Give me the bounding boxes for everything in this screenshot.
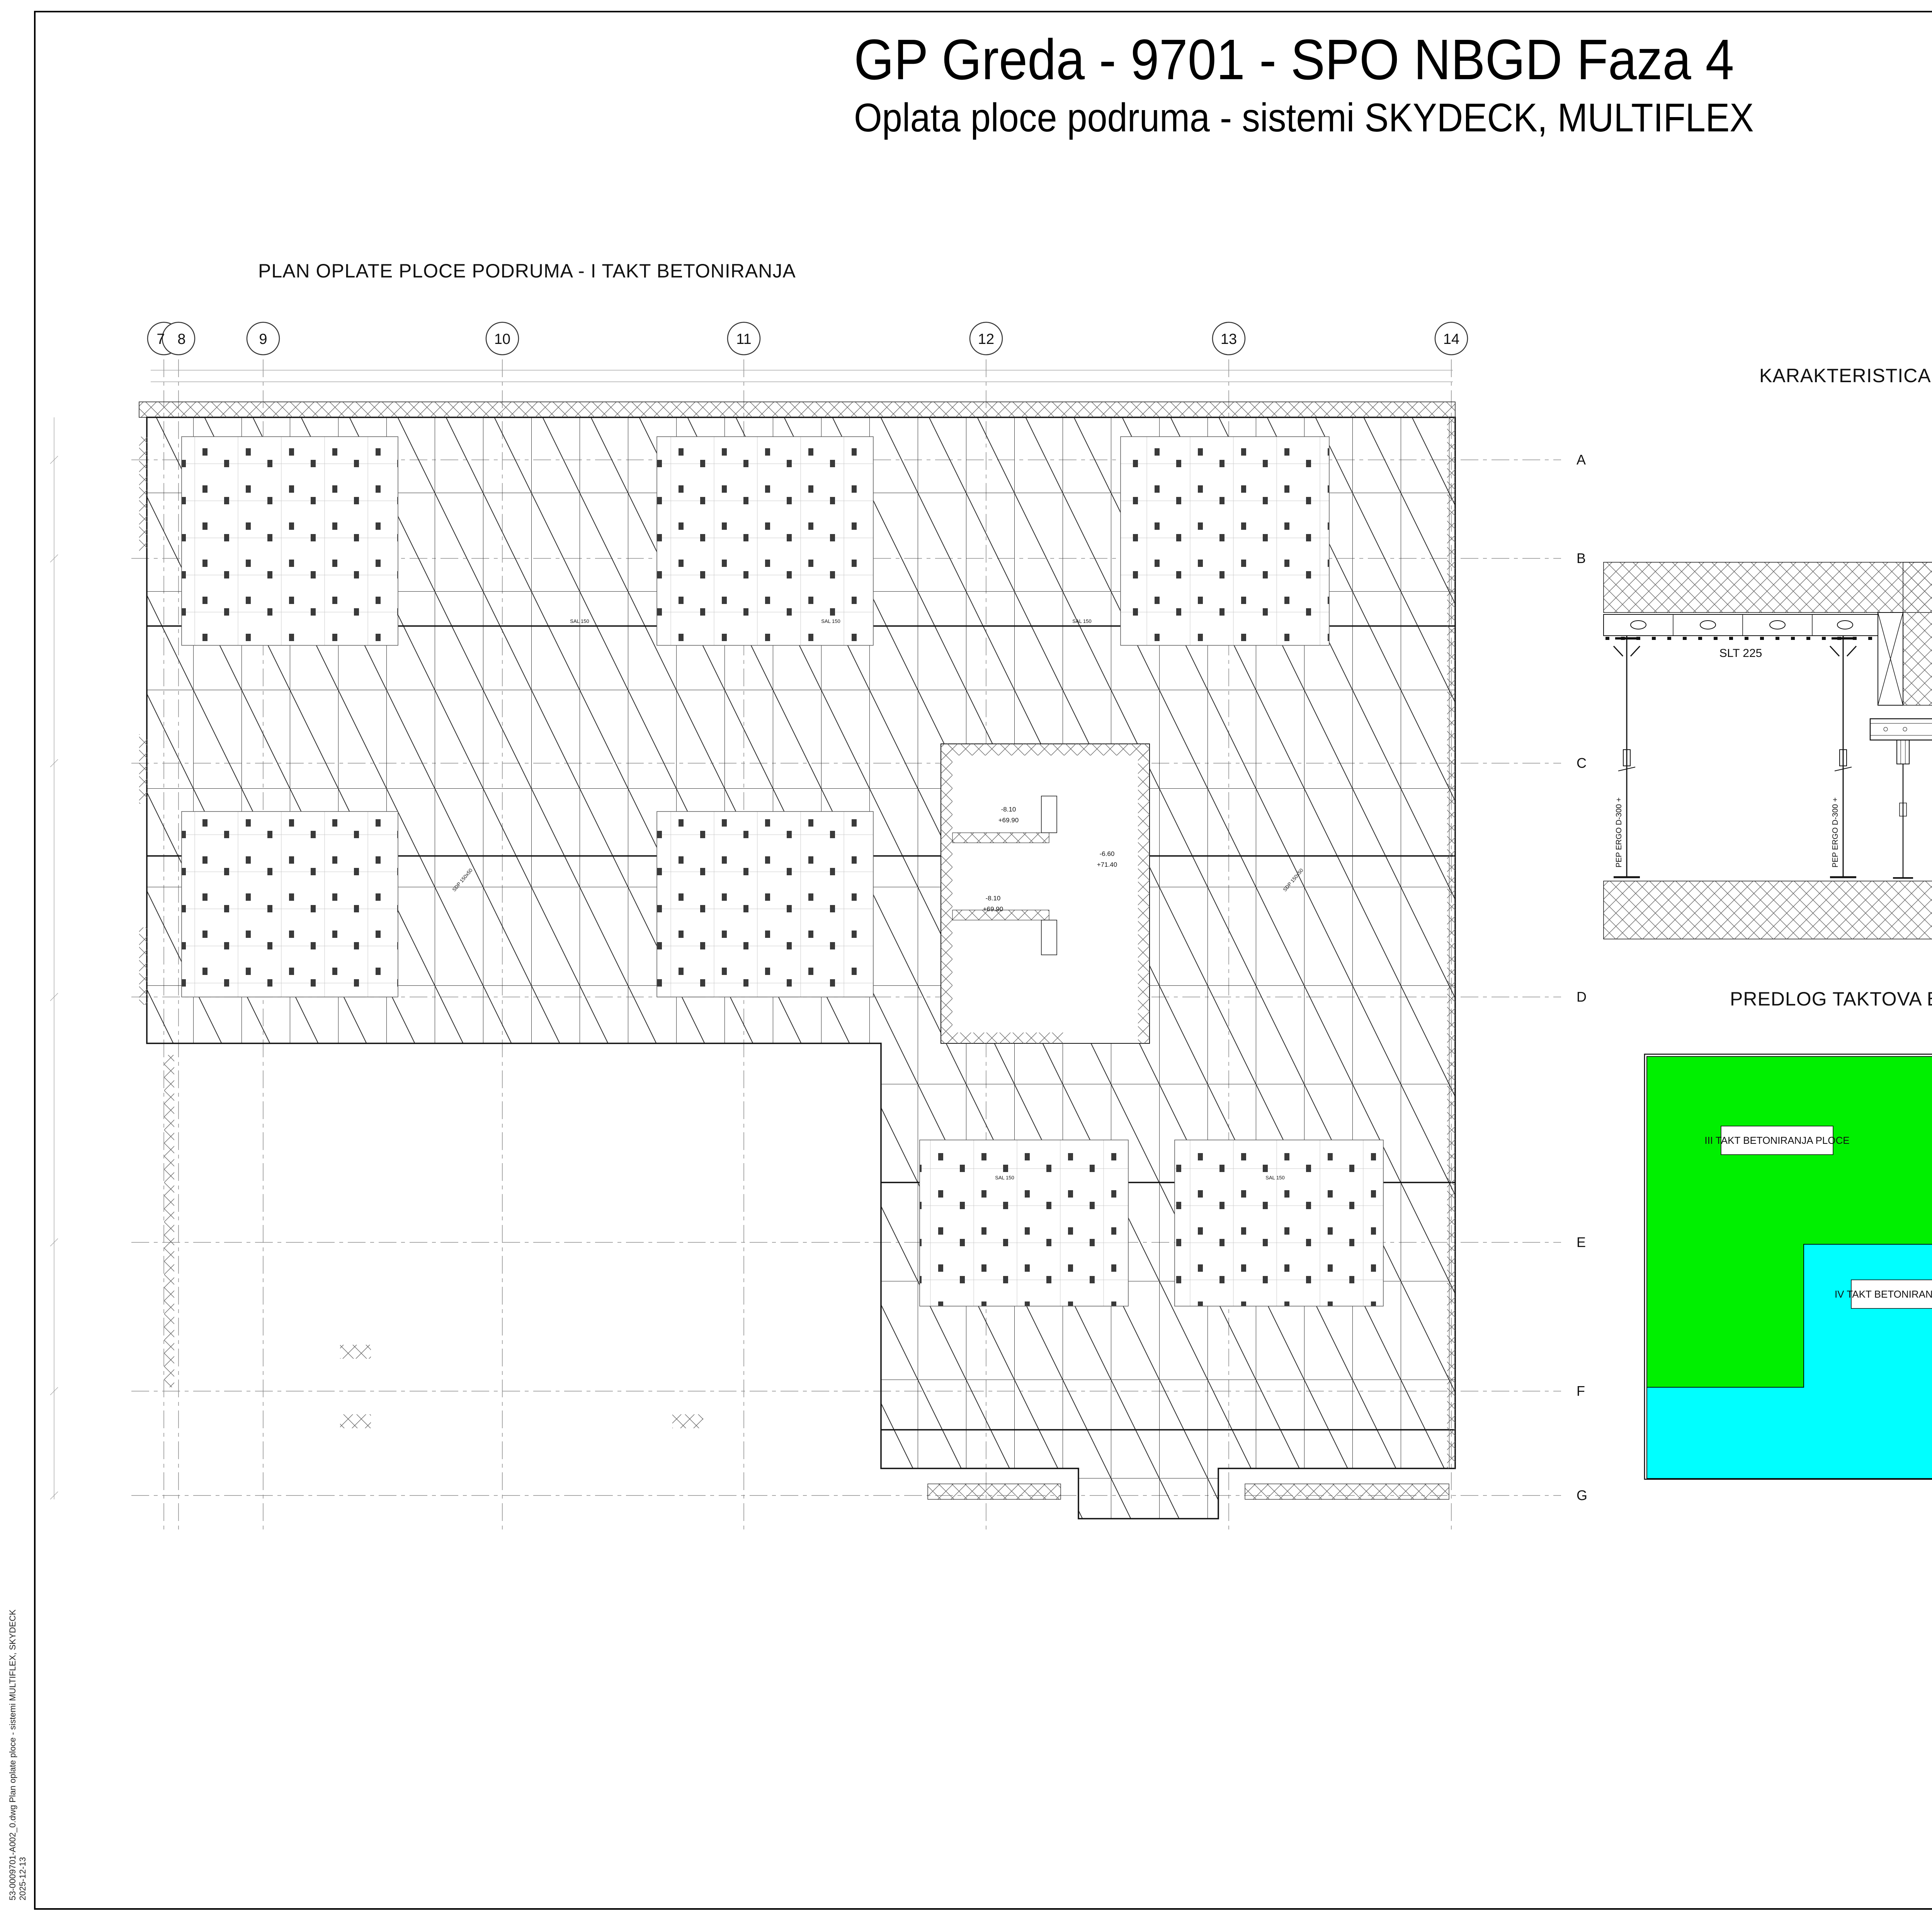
svg-text:G: G xyxy=(1577,1487,1587,1503)
takt-zone-label: III TAKT BETONIRANJA PLOCE xyxy=(1704,1135,1849,1146)
core-level-label: -8.10 xyxy=(986,895,1001,902)
grid-bubble-label: 13 xyxy=(1221,331,1237,347)
stair-core: -8.10 +69.90 -8.10 +69.90 -6.60 +71.40 xyxy=(941,744,1150,1043)
core-level-label: -8.10 xyxy=(1001,806,1016,813)
vt-beams xyxy=(1870,719,1932,740)
cad-drawing: -8.10 +69.90 -8.10 +69.90 -6.60 +71.40 S… xyxy=(0,0,1932,1919)
prop-labels: PEP ERGO D-300 + PEP ERGO D-300 + PEP ER… xyxy=(1615,798,1932,868)
bottom-wall-right xyxy=(1245,1484,1449,1499)
slt-label: SLT 225 xyxy=(1719,647,1762,660)
svg-text:C: C xyxy=(1577,755,1587,771)
svg-text:F: F xyxy=(1577,1383,1585,1399)
floor-plan: -8.10 +69.90 -8.10 +69.90 -6.60 +71.40 S… xyxy=(50,322,1587,1530)
svg-text:SAL 150: SAL 150 xyxy=(570,618,589,624)
timber-infill xyxy=(1878,612,1903,705)
svg-text:SAL 150: SAL 150 xyxy=(995,1175,1014,1181)
top-wall xyxy=(139,402,1455,417)
beam-props xyxy=(1893,740,1932,878)
grid-bubble-label: 10 xyxy=(494,331,510,347)
sheet-subtitle: Oplata ploce podruma - sistemi SKYDECK, … xyxy=(854,95,1689,141)
right-wall xyxy=(1447,417,1455,1468)
sheet-title: GP Greda - 9701 - SPO NBGD Faza 4 xyxy=(854,27,1689,93)
grid-bubble-label: 9 xyxy=(259,331,267,347)
ghost-walls xyxy=(164,1055,703,1428)
grid-bubble-label: 7 xyxy=(156,331,165,347)
plan-heading: PLAN OPLATE PLOCE PODRUMA - I TAKT BETON… xyxy=(258,260,796,282)
svg-text:SAL 150: SAL 150 xyxy=(1072,618,1091,624)
svg-text:PEP ERGO D-300 +: PEP ERGO D-300 + xyxy=(1831,798,1840,868)
bottom-wall-left xyxy=(928,1484,1061,1499)
takt-zone-label: IV TAKT BETONIRANJA PLOCE xyxy=(1835,1288,1932,1300)
sheet-title-block: GP Greda - 9701 - SPO NBGD Faza 4 Oplata… xyxy=(808,27,1735,141)
section-top-slab xyxy=(1604,562,1932,612)
grid-row-letters: A B C D E F G xyxy=(1577,452,1587,1503)
margin-file-info: 53-0009701-A002_0.dwg Plan oplate ploce … xyxy=(8,1607,28,1900)
core-level-label: -6.60 xyxy=(1100,850,1115,857)
takt-diagram: III TAKT BETONIRANJA PLOCE I TAKT BETONI… xyxy=(1645,1054,1932,1479)
margin-file-name: 53-0009701-A002_0.dwg Plan oplate ploce … xyxy=(8,1607,18,1900)
svg-text:A: A xyxy=(1577,452,1586,468)
core-level-label: +71.40 xyxy=(1097,861,1117,868)
section-floor xyxy=(1604,881,1932,939)
takt-heading: PREDLOG TAKTOVA BETONIRANJA PLOCE PODRUM… xyxy=(1730,988,1932,1010)
grid-bubble-label: 14 xyxy=(1443,331,1459,347)
characteristic-section: SLT 225 SLT 225 VT 20K l= 2,15m VT 20K l… xyxy=(1604,454,1932,939)
svg-text:B: B xyxy=(1577,550,1586,566)
section-heading: KARAKTERISTICAN PRESEK xyxy=(1759,364,1932,387)
grid-bubble-label: 11 xyxy=(736,331,751,347)
svg-text:E: E xyxy=(1577,1234,1586,1250)
drawing-sheet: -8.10 +69.90 -8.10 +69.90 -6.60 +71.40 S… xyxy=(0,0,1932,1919)
grid-bubble-label: 8 xyxy=(177,331,185,347)
grid-bubbles: 7 8 9 10 11 12 13 14 xyxy=(148,322,1468,355)
svg-text:PEP ERGO D-300 +: PEP ERGO D-300 + xyxy=(1615,798,1623,868)
grid-bubble-label: 12 xyxy=(978,331,994,347)
svg-text:SAL 150: SAL 150 xyxy=(1265,1175,1284,1181)
svg-text:SAL 150: SAL 150 xyxy=(821,618,840,624)
margin-plot-date: 2025-12-13 xyxy=(18,1607,28,1900)
section-dropped-slab xyxy=(1903,562,1932,705)
core-level-label: +69.90 xyxy=(998,817,1019,824)
svg-text:D: D xyxy=(1577,989,1587,1005)
core-level-label: +69.90 xyxy=(983,905,1003,913)
